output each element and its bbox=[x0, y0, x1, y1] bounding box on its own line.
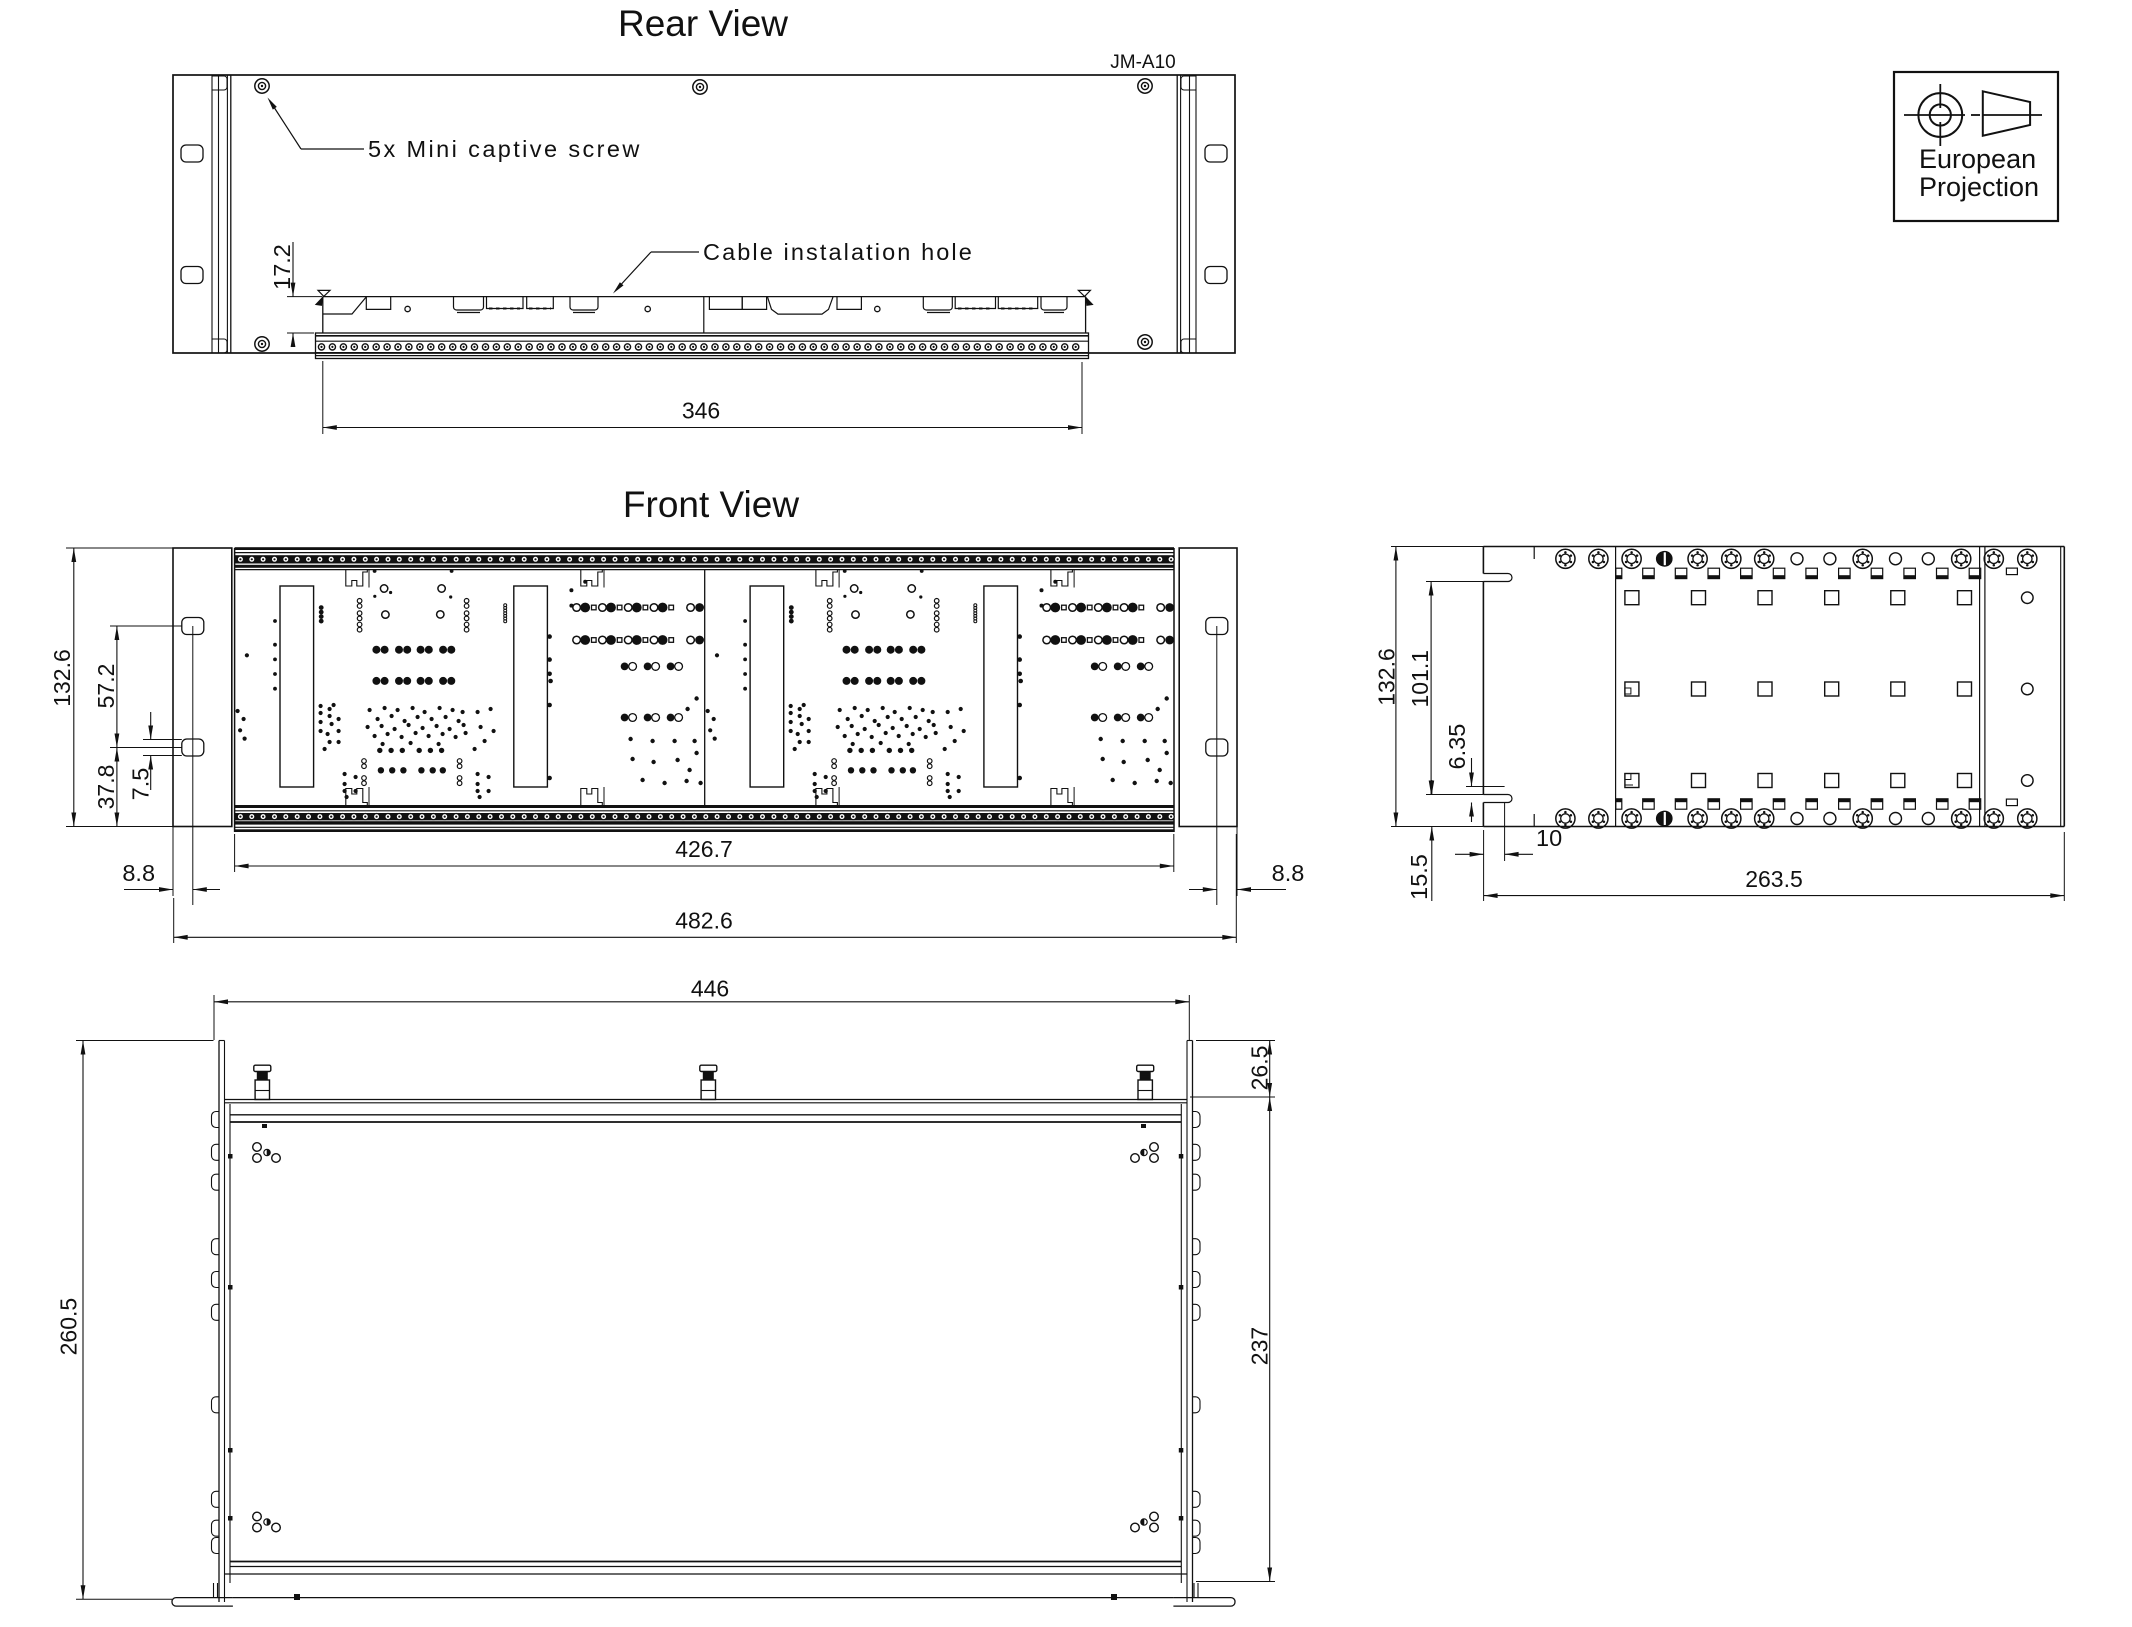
svg-text:8.8: 8.8 bbox=[122, 860, 155, 886]
svg-text:132.6: 132.6 bbox=[49, 649, 75, 707]
svg-text:8.8: 8.8 bbox=[1272, 860, 1305, 886]
svg-text:Projection: Projection bbox=[1919, 172, 2039, 202]
svg-text:237: 237 bbox=[1247, 1327, 1273, 1365]
svg-text:446: 446 bbox=[691, 976, 729, 1002]
svg-text:260.5: 260.5 bbox=[56, 1298, 82, 1356]
svg-text:57.2: 57.2 bbox=[93, 664, 119, 709]
svg-text:Front View: Front View bbox=[623, 484, 799, 525]
svg-text:26.5: 26.5 bbox=[1247, 1046, 1273, 1091]
svg-text:7.5: 7.5 bbox=[128, 768, 154, 801]
svg-text:482.6: 482.6 bbox=[675, 908, 733, 934]
svg-text:263.5: 263.5 bbox=[1745, 866, 1803, 892]
svg-text:Cable instalation hole: Cable instalation hole bbox=[703, 239, 974, 265]
svg-text:5x Mini captive screw: 5x Mini captive screw bbox=[368, 136, 642, 162]
svg-text:JM-A10: JM-A10 bbox=[1110, 52, 1175, 73]
svg-text:15.5: 15.5 bbox=[1406, 854, 1432, 900]
svg-text:132.6: 132.6 bbox=[1374, 648, 1400, 706]
svg-text:346: 346 bbox=[682, 398, 720, 424]
svg-text:101.1: 101.1 bbox=[1407, 650, 1433, 708]
svg-text:6.35: 6.35 bbox=[1444, 724, 1470, 770]
svg-text:10: 10 bbox=[1536, 825, 1562, 851]
svg-text:426.7: 426.7 bbox=[675, 836, 733, 862]
svg-text:Rear View: Rear View bbox=[618, 3, 788, 44]
svg-text:European: European bbox=[1919, 144, 2036, 174]
svg-text:17.2: 17.2 bbox=[269, 244, 295, 290]
svg-text:37.8: 37.8 bbox=[93, 765, 119, 810]
